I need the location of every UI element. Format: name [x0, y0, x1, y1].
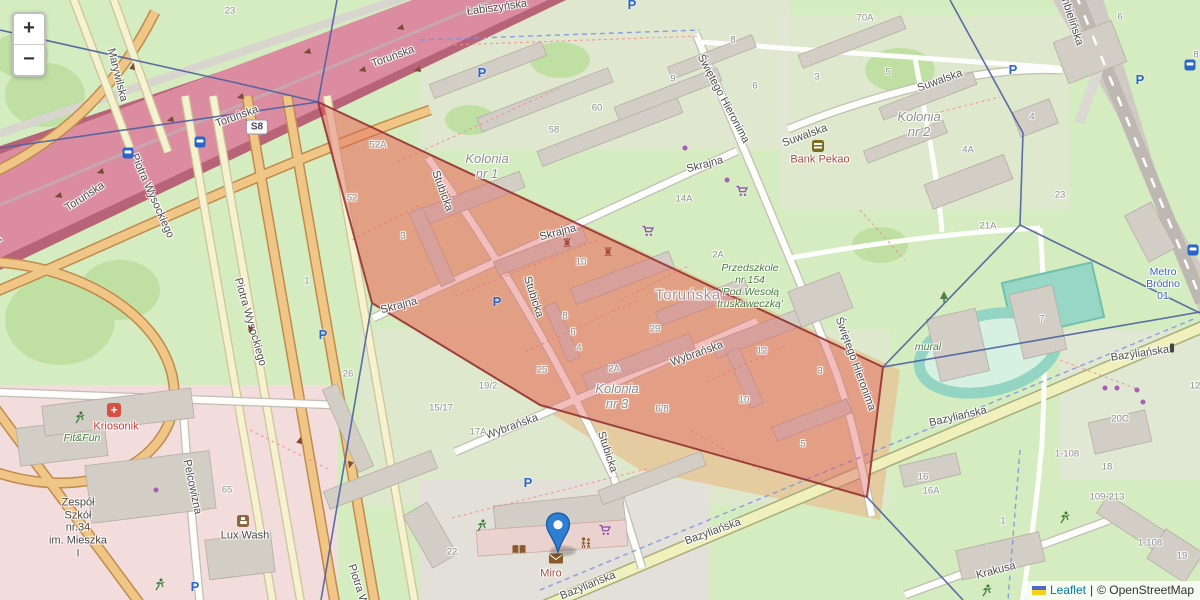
osm-link[interactable]: © OpenStreetMap [1097, 583, 1194, 597]
zoom-control: + − [12, 12, 46, 77]
ukraine-flag-icon [1032, 586, 1046, 595]
zoom-in-button[interactable]: + [14, 14, 44, 45]
map-marker[interactable] [545, 512, 571, 559]
zoom-out-button[interactable]: − [14, 45, 44, 75]
map-tiles [0, 0, 1200, 600]
road-badge-s8: S8 [246, 120, 268, 135]
leaflet-link[interactable]: Leaflet [1050, 583, 1086, 597]
attribution-bar: Leaflet | © OpenStreetMap [1026, 581, 1200, 600]
marker-pin-icon [545, 512, 571, 554]
attribution-separator: | [1090, 583, 1093, 597]
map-canvas[interactable]: MarywilskaŁabiszyńskaToruńskaToruńskaTor… [0, 0, 1200, 600]
